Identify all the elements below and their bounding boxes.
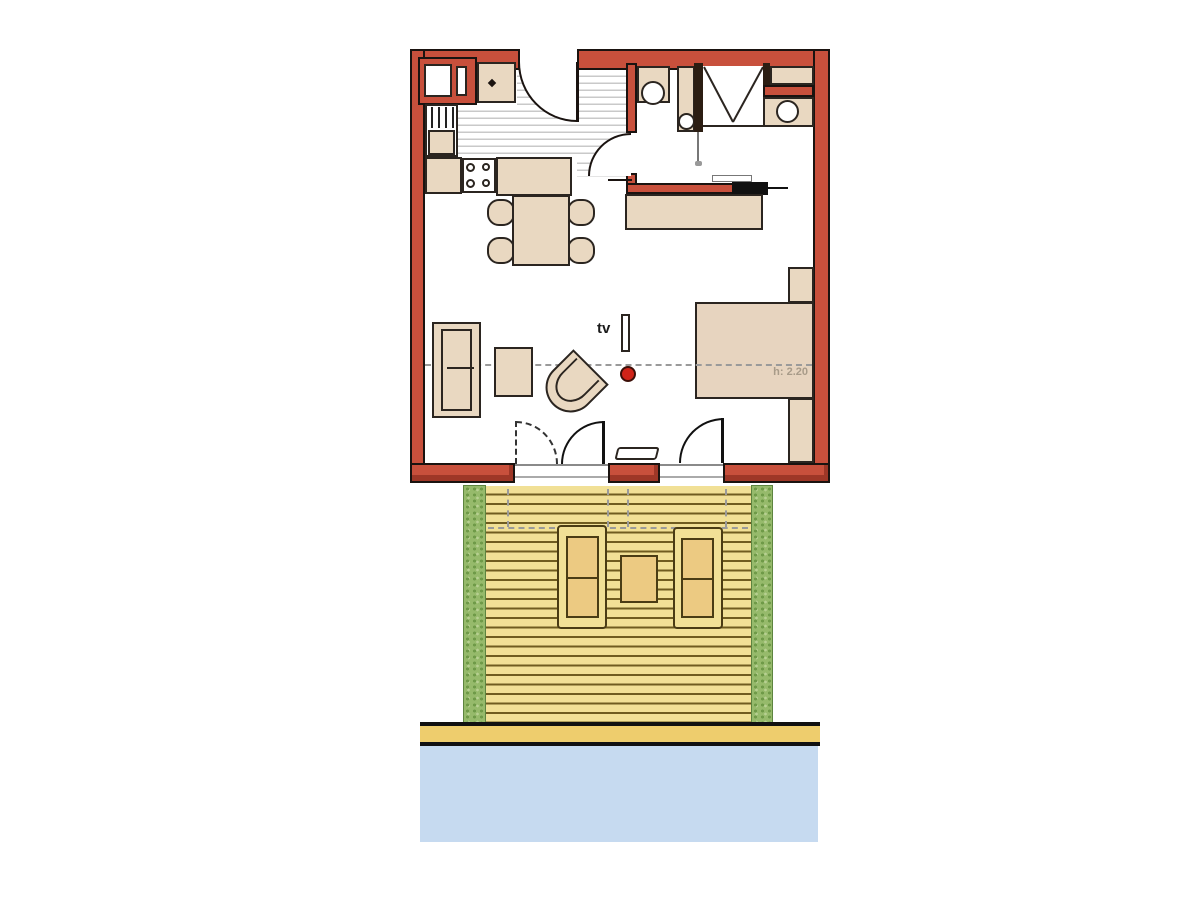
- french-door-swing-dashed: [516, 421, 558, 464]
- sun-lounger: [557, 525, 607, 629]
- desk-shelf: [712, 175, 752, 182]
- dining-chair: [567, 199, 595, 226]
- sun-lounger-fold-line: [683, 578, 714, 580]
- desk-back-wall: [626, 183, 742, 194]
- kitchen-counter-left: [425, 157, 462, 194]
- wall-bottom-left: [410, 463, 515, 483]
- wall-left: [410, 49, 425, 483]
- shower-tray: [703, 66, 764, 127]
- tv-icon: [621, 314, 630, 352]
- bathroom-dark-wall: [694, 63, 703, 132]
- overhang-dashed-line: [507, 489, 509, 527]
- terrace-door-swing: [679, 418, 724, 463]
- wall-right: [813, 49, 830, 483]
- bathroom-top-cabinet: [770, 66, 814, 85]
- burner-icon: [482, 163, 490, 171]
- vanity-basin-icon: [776, 100, 799, 123]
- burner-icon: [466, 179, 475, 188]
- sun-lounger: [673, 527, 723, 629]
- kitchen-counter-right: [496, 157, 572, 196]
- kitchen-appliance-box: [424, 64, 452, 97]
- tub-chair-inner: [548, 358, 600, 410]
- hedge-left: [463, 485, 486, 725]
- water: [420, 746, 818, 842]
- overhang-dashed-line: [627, 489, 629, 527]
- french-door-swing: [561, 421, 604, 464]
- terrace-door-leaf: [721, 418, 724, 463]
- tub-chair: [542, 355, 604, 419]
- tv-label: tv: [597, 320, 610, 337]
- entry-door-leaf: [576, 62, 579, 122]
- double-bed: [695, 302, 814, 399]
- floor-plan-canvas: h: 2.20 tv: [0, 0, 1200, 900]
- kitchen-appliance-slot: [456, 66, 467, 96]
- desk: [625, 194, 763, 230]
- sun-lounger-fold-line: [568, 577, 599, 579]
- overhang-dashed-line: [607, 489, 609, 527]
- deck-table: [620, 555, 658, 603]
- dining-table: [512, 195, 570, 266]
- coffee-table: [494, 347, 533, 397]
- small-washbasin-icon: [678, 113, 695, 130]
- sofa: [432, 322, 481, 418]
- hedge-right: [751, 485, 773, 725]
- dining-chair: [487, 237, 515, 264]
- shower-screen-line: [697, 132, 699, 164]
- french-door-leaf: [602, 421, 605, 464]
- dish-rack-icon: [431, 107, 454, 128]
- dining-chair: [487, 199, 515, 226]
- toilet-bowl-icon: [641, 81, 665, 105]
- sofa-divider-line: [447, 367, 474, 369]
- ceiling-height-label: h: 2.20: [752, 366, 808, 378]
- kitchen-drawer-box: [428, 130, 455, 155]
- bathroom-partition-wall: [626, 63, 637, 133]
- bathroom-door-leaf: [608, 179, 632, 181]
- red-spot-marker: [620, 366, 636, 382]
- tub-chair-outer: [535, 349, 609, 423]
- wardrobe-strip-bottom: [788, 398, 814, 463]
- wall-bottom-pillar: [608, 463, 660, 483]
- dining-chair: [567, 237, 595, 264]
- desk-dark-line: [768, 187, 788, 189]
- burner-icon: [482, 179, 490, 187]
- burner-icon: [466, 163, 475, 172]
- overhang-dashed-line: [725, 489, 727, 527]
- wardrobe-strip-top: [788, 267, 814, 303]
- vanity-back-wall: [763, 85, 814, 97]
- sofa-cushion-outline: [441, 329, 472, 411]
- shower-v-icon: [703, 66, 764, 127]
- boardwalk-sand-strip: [420, 722, 820, 746]
- wall-bottom-right: [723, 463, 830, 483]
- shower-screen-end: [695, 161, 702, 166]
- door-mat: [614, 447, 659, 460]
